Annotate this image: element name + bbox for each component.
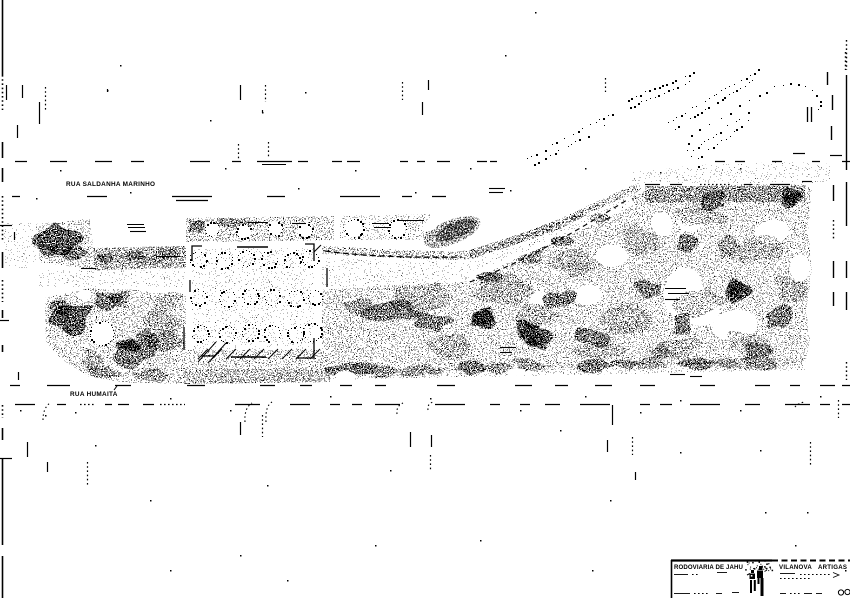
- svg-text:VILANOVA: VILANOVA: [779, 564, 812, 571]
- svg-text:RODOVIARIA DE JAHU: RODOVIARIA DE JAHU: [674, 564, 743, 571]
- svg-text:ARTIGAS: ARTIGAS: [818, 564, 847, 571]
- svg-text:RUA SALDANHA MARINHO: RUA SALDANHA MARINHO: [66, 181, 155, 188]
- svg-text:RUA HUMAITA: RUA HUMAITA: [70, 391, 118, 398]
